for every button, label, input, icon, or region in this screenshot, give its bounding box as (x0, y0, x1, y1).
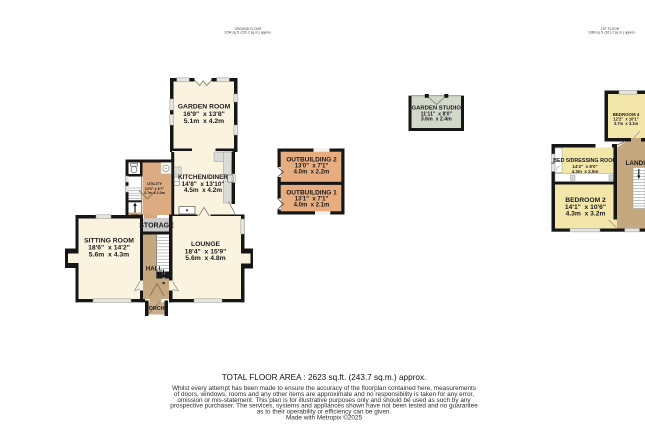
svg-text:BEDROOM 2: BEDROOM 2 (565, 197, 606, 204)
svg-text:3.6m x 2.4m: 3.6m x 2.4m (421, 117, 452, 123)
svg-text:16'9" x 13'8": 16'9" x 13'8" (183, 111, 225, 118)
svg-text:4.3m x 2.5m: 4.3m x 2.5m (572, 169, 599, 174)
svg-text:3.7m x 2.0m: 3.7m x 2.0m (144, 191, 166, 195)
svg-text:1294 sq.ft. (120.2 sq.m.) appr: 1294 sq.ft. (120.2 sq.m.) approx. (224, 30, 272, 34)
svg-text:HALL: HALL (146, 266, 163, 273)
svg-text:LANDING: LANDING (626, 160, 645, 167)
svg-text:4.0m x 2.1m: 4.0m x 2.1m (294, 202, 330, 208)
svg-text:3.7m x 3.1m: 3.7m x 3.1m (614, 121, 639, 126)
svg-text:GARDEN ROOM: GARDEN ROOM (178, 103, 231, 110)
svg-text:PORCH: PORCH (145, 306, 165, 312)
svg-text:4.0m x 2.2m: 4.0m x 2.2m (294, 170, 330, 176)
svg-text:5.6m x 4.3m: 5.6m x 4.3m (89, 252, 129, 259)
svg-text:SITTING ROOM: SITTING ROOM (84, 237, 134, 244)
svg-text:TOTAL FLOOR AREA : 2623 sq.ft.: TOTAL FLOOR AREA : 2623 sq.ft. (243.7 sq… (222, 373, 427, 382)
svg-text:4.5m x 4.2m: 4.5m x 4.2m (184, 187, 222, 194)
svg-text:OUTBUILDING 2: OUTBUILDING 2 (286, 156, 337, 163)
svg-text:4.3m x 3.2m: 4.3m x 3.2m (566, 211, 606, 218)
svg-text:5.6m x 4.8m: 5.6m x 4.8m (185, 255, 225, 262)
svg-text:Made with Metropix ©2025: Made with Metropix ©2025 (286, 414, 363, 422)
svg-text:13'0" x 7'1": 13'0" x 7'1" (295, 163, 329, 169)
svg-text:LOUNGE: LOUNGE (191, 241, 221, 248)
svg-text:STORAGE: STORAGE (139, 223, 174, 230)
svg-text:1089 sq.ft. (101.2 sq.m.) appr: 1089 sq.ft. (101.2 sq.m.) approx. (588, 30, 636, 34)
svg-text:18'6" x 14'2": 18'6" x 14'2" (88, 245, 130, 252)
svg-text:BED 5/DRESSING ROOM: BED 5/DRESSING ROOM (553, 158, 617, 164)
svg-text:5.1m x 4.2m: 5.1m x 4.2m (184, 118, 224, 125)
svg-text:UTILITY: UTILITY (147, 181, 162, 186)
